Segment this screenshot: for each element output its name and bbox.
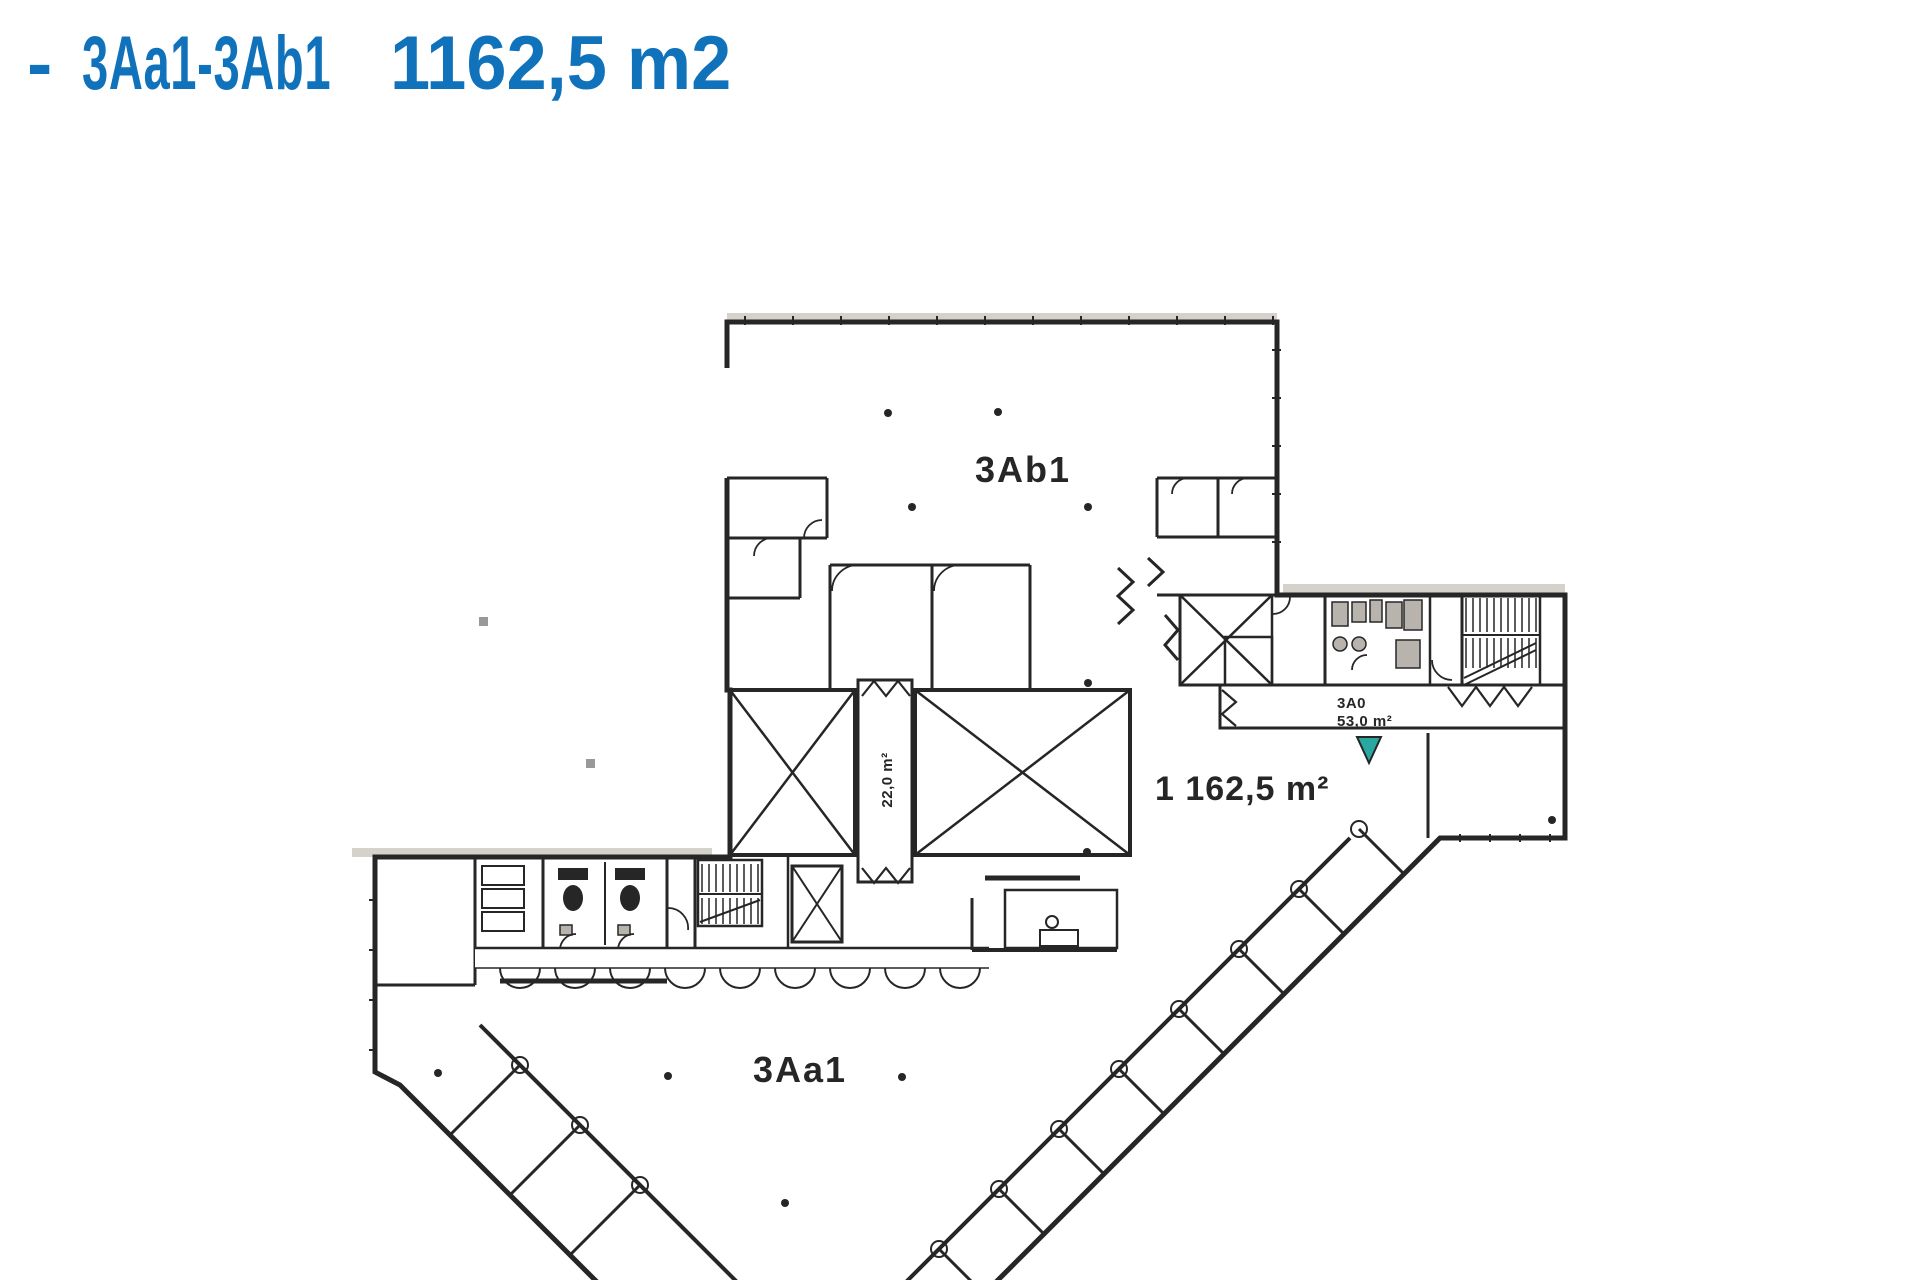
label-right-corridor-name: 3A0 (1337, 695, 1366, 712)
core-stair-elevator-block (730, 680, 1130, 883)
entrance-marker-teal (1357, 737, 1381, 763)
diagonal-office-bands (450, 821, 1404, 1280)
label-unit-3ab1: 3Ab1 (975, 449, 1071, 490)
right-wing-rooms (1180, 595, 1565, 728)
exterior-sill-strips (352, 313, 1565, 857)
wall-break-symbols (1118, 558, 1178, 660)
floor-plan: 3Ab1 3Aa1 1 162,5 m² 22,0 m² 3A0 53,0 m² (0, 0, 1920, 1280)
label-unit-3aa1: 3Aa1 (753, 1049, 847, 1090)
label-right-corridor-area: 53,0 m² (1337, 713, 1392, 730)
label-total-area: 1 162,5 m² (1155, 770, 1329, 808)
slide-page: - 3Aa1-3Ab1 1162,5 m2 (0, 0, 1920, 1280)
facade-ticks (369, 316, 1550, 1050)
building-footprint (375, 322, 1565, 1280)
label-core-corridor-area: 22,0 m² (879, 752, 896, 807)
plan-dots (434, 408, 1556, 1207)
left-wing-rooms (373, 857, 1117, 988)
unit-3ab1-partitions (727, 478, 1277, 690)
window-gap (722, 368, 731, 478)
